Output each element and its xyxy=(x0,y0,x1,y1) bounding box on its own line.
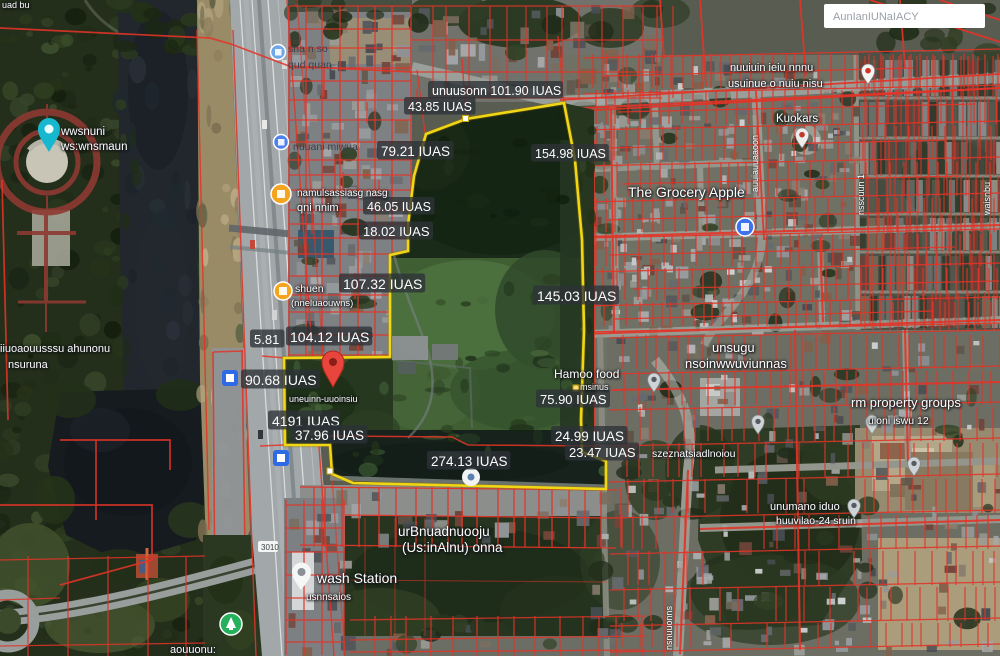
svg-text:unsugu: unsugu xyxy=(712,340,755,355)
svg-text:wwsnuni: wwsnuni xyxy=(60,126,105,138)
svg-text:107.32 IUAS: 107.32 IUAS xyxy=(343,276,422,292)
svg-text:waisnbu: waisnbu xyxy=(982,182,992,216)
svg-text:(Us:inAlnu) onna: (Us:inAlnu) onna xyxy=(402,540,503,555)
svg-text:namulsassiasg nasg: namulsassiasg nasg xyxy=(297,188,388,199)
svg-text:The Grocery Apple: The Grocery Apple xyxy=(628,184,745,200)
svg-text:auuiauuaaoon: auuiauuaaoon xyxy=(750,135,760,192)
svg-text:huuvilao-24 sruin: huuvilao-24 sruin xyxy=(776,515,856,527)
svg-text:qni nnim: qni nnim xyxy=(297,202,339,214)
svg-text:24.99 IUAS: 24.99 IUAS xyxy=(555,429,624,444)
svg-text:usnnsaios: usnnsaios xyxy=(306,592,351,603)
svg-text:unuusonn 101.90 IUAS: unuusonn 101.90 IUAS xyxy=(432,84,561,98)
svg-text:Hamoo food: Hamoo food xyxy=(554,367,619,381)
svg-text:Kuokars: Kuokars xyxy=(776,113,818,125)
svg-text:AunIanIUNaIACY: AunIanIUNaIACY xyxy=(833,11,919,23)
svg-text:145.03 IUAS: 145.03 IUAS xyxy=(537,288,616,304)
svg-text:unumano iduo: unumano iduo xyxy=(770,501,840,513)
svg-text:nuuani miwua: nuuani miwua xyxy=(293,141,358,153)
svg-text:3010: 3010 xyxy=(261,543,279,552)
svg-text:usuinue o nuiu nisu: usuinue o nuiu nisu xyxy=(728,78,823,90)
svg-text:104.12 IUAS: 104.12 IUAS xyxy=(290,329,369,345)
svg-text:75.90 IUAS: 75.90 IUAS xyxy=(540,392,607,407)
svg-text:nsoinwwuviunnas: nsoinwwuviunnas xyxy=(685,356,787,371)
svg-text:wash Station: wash Station xyxy=(316,570,397,586)
svg-text:ws:wnsmaun: ws:wnsmaun xyxy=(60,141,127,153)
svg-text:nuuiuin ieiu nnnu: nuuiuin ieiu nnnu xyxy=(730,62,813,74)
svg-text:msinus: msinus xyxy=(580,382,609,392)
svg-text:18.02 IUAS: 18.02 IUAS xyxy=(363,224,430,239)
svg-text:shuen: shuen xyxy=(295,283,324,295)
svg-text:nsnuuonns: nsnuuonns xyxy=(664,605,674,650)
svg-text:nsuruna: nsuruna xyxy=(8,359,49,371)
svg-text:23.47 IUAS: 23.47 IUAS xyxy=(569,445,636,460)
svg-text:274.13 IUAS: 274.13 IUAS xyxy=(431,454,508,469)
svg-text:uneuinn-uuoinsiu: uneuinn-uuoinsiu xyxy=(289,394,358,404)
svg-text:iiuoaouusssu ahunonu: iiuoaouusssu ahunonu xyxy=(0,343,110,355)
svg-text:szeznatsiadlnoiou: szeznatsiadlnoiou xyxy=(652,448,736,460)
svg-text:43.85 IUAS: 43.85 IUAS xyxy=(408,100,472,114)
svg-text:nsscuun 1: nsscuun 1 xyxy=(856,174,866,215)
svg-text:rm property groups: rm property groups xyxy=(851,395,961,410)
svg-text:qud quan: qud quan xyxy=(288,59,332,71)
svg-text:sna n so: sna n so xyxy=(288,43,328,55)
svg-text:aouuonu:: aouuonu: xyxy=(170,644,216,656)
svg-text:90.68 IUAS: 90.68 IUAS xyxy=(245,372,317,388)
svg-text:urBnuadnuooju: urBnuadnuooju xyxy=(398,524,490,539)
svg-text:5.81: 5.81 xyxy=(254,332,279,347)
svg-text:154.98 IUAS: 154.98 IUAS xyxy=(535,147,606,161)
svg-text:46.05 IUAS: 46.05 IUAS xyxy=(367,200,431,214)
svg-text:uad bu: uad bu xyxy=(2,0,30,10)
svg-text:uioni iswu 12: uioni iswu 12 xyxy=(868,415,929,427)
svg-text:(nneluaouwns): (nneluaouwns) xyxy=(291,298,353,309)
svg-text:79.21 IUAS: 79.21 IUAS xyxy=(381,144,450,159)
svg-text:37.96 IUAS: 37.96 IUAS xyxy=(295,428,364,443)
